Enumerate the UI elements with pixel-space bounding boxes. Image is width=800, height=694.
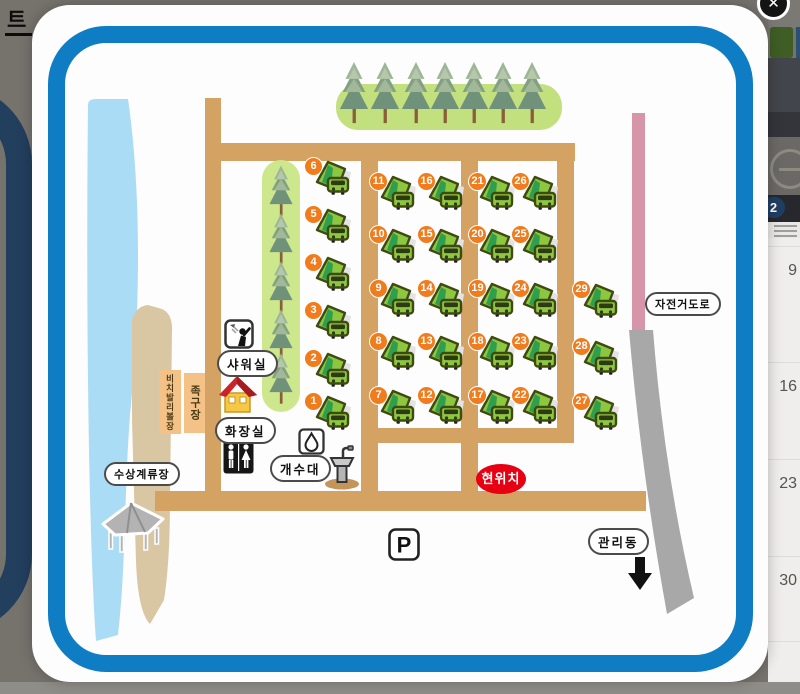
site-number-badge: 16 [417, 172, 436, 191]
site-marker: 15 [417, 225, 473, 265]
calendar-grid-line [768, 362, 800, 363]
svg-text:P: P [397, 533, 412, 558]
bicycle-road [632, 113, 645, 332]
site-number-badge: 8 [369, 332, 388, 351]
canopy-icon [100, 496, 166, 554]
exit-arrow-icon [627, 556, 653, 590]
site-marker: 26 [511, 172, 567, 212]
side-panel-dark-block2 [768, 112, 800, 137]
site-number-badge: 7 [369, 386, 388, 405]
site-marker: 2 [304, 349, 360, 389]
water-drop-icon [298, 428, 325, 455]
tree-icon [516, 58, 548, 128]
site-marker: 29 [572, 280, 628, 320]
site-number-badge: 17 [468, 386, 487, 405]
site-number-badge: 3 [304, 301, 323, 320]
background-blue-button [796, 27, 800, 58]
site-number-badge: 15 [417, 225, 436, 244]
label-bicycle-road: 자전거도로 [645, 292, 721, 316]
site-number-badge: 18 [468, 332, 487, 351]
site-number-badge: 10 [369, 225, 388, 244]
calendar-date: 30 [779, 572, 797, 590]
current-location-badge: 현위치 [476, 464, 526, 494]
site-number-badge: 14 [417, 279, 436, 298]
site-number-badge: 12 [417, 386, 436, 405]
tree-icon [266, 164, 296, 218]
label-water-mooring: 수상계류장 [104, 462, 180, 486]
tree-icon [369, 58, 401, 128]
tree-icon [458, 58, 490, 128]
site-number-badge: 4 [304, 253, 323, 272]
site-marker: 23 [511, 332, 567, 372]
site-marker: 24 [511, 279, 567, 319]
site-marker: 12 [417, 386, 473, 426]
site-marker: 28 [572, 337, 628, 377]
background-green-button [770, 27, 793, 58]
background-bottom-strip [0, 682, 800, 694]
site-number-badge: 25 [511, 225, 530, 244]
background-text-fragment: 트 [5, 9, 32, 36]
calendar-grid-line [768, 556, 800, 557]
parking-icon: P [388, 528, 420, 561]
site-number-badge: 20 [468, 225, 487, 244]
site-number-badge: 28 [572, 337, 591, 356]
site-number-badge: 19 [468, 279, 487, 298]
label-office: 관리동 [588, 528, 649, 555]
site-marker: 6 [304, 157, 360, 197]
site-number-badge: 9 [369, 279, 388, 298]
site-marker: 3 [304, 301, 360, 341]
tree-icon [266, 212, 296, 266]
site-number-badge: 27 [572, 392, 591, 411]
site-number-badge: 5 [304, 205, 323, 224]
site-number-badge: 2 [304, 349, 323, 368]
side-panel-dark-block [768, 58, 800, 112]
site-number-badge: 22 [511, 386, 530, 405]
site-marker: 22 [511, 386, 567, 426]
tree-icon [266, 260, 296, 314]
background-map-border [0, 84, 32, 634]
site-number-badge: 13 [417, 332, 436, 351]
road-main-bottom [155, 491, 646, 511]
site-marker: 16 [417, 172, 473, 212]
site-number-badge: 26 [511, 172, 530, 191]
site-marker: 25 [511, 225, 567, 265]
calendar-date: 16 [779, 378, 797, 396]
site-marker: 14 [417, 279, 473, 319]
site-marker: 4 [304, 253, 360, 293]
calendar-date: 23 [779, 475, 797, 493]
site-number-badge: 29 [572, 280, 591, 299]
site-marker: 27 [572, 392, 628, 432]
tree-icon [487, 58, 519, 128]
site-marker: 13 [417, 332, 473, 372]
site-marker: 1 [304, 392, 360, 432]
site-number-badge: 6 [304, 157, 323, 176]
site-number-badge: 1 [304, 392, 323, 411]
site-number-badge: 21 [468, 172, 487, 191]
tree-icon [429, 58, 461, 128]
label-shower: 샤워실 [217, 350, 278, 377]
site-number-badge: 11 [369, 172, 388, 191]
tree-icon [338, 58, 370, 128]
site-number-badge: 24 [511, 279, 530, 298]
road-top-horizontal [205, 143, 575, 161]
calendar-date: 9 [788, 262, 797, 280]
calendar-column [768, 238, 800, 682]
label-sink: 개수대 [270, 455, 331, 482]
beach-volleyball-court: 비치발리볼장 [159, 370, 181, 434]
screen: 트 2 9162330 비치발리볼장 족구장 [0, 0, 800, 694]
site-number-badge: 23 [511, 332, 530, 351]
calendar-grid-line [768, 459, 800, 460]
toilet-icon [223, 440, 254, 474]
tree-icon [400, 58, 432, 128]
calendar-small-text [768, 222, 800, 238]
site-marker: 5 [304, 205, 360, 245]
house-icon [216, 372, 260, 414]
label-toilet: 화장실 [215, 417, 276, 444]
road-block-bottom [361, 428, 574, 443]
calendar-grid-line [768, 246, 800, 247]
shower-icon [224, 319, 254, 349]
foot-volleyball-court: 족구장 [184, 373, 205, 433]
